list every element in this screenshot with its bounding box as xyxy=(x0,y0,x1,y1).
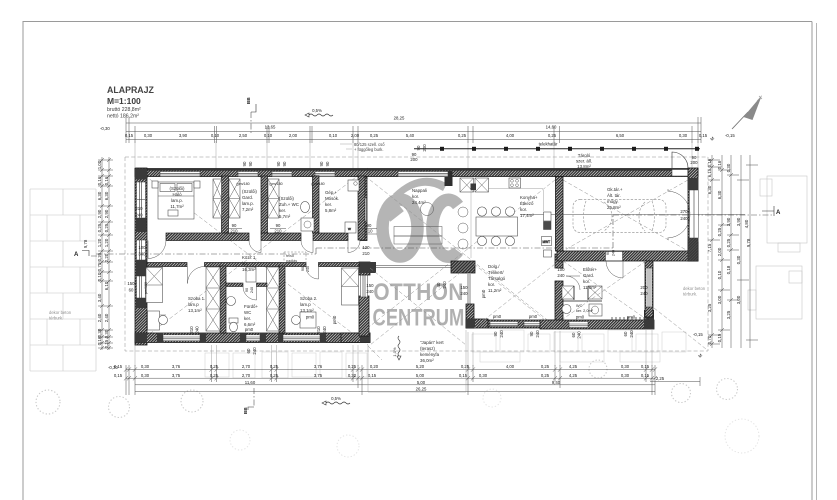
svg-text:13,1m²: 13,1m² xyxy=(300,308,314,313)
svg-text:0,16: 0,16 xyxy=(97,176,102,185)
svg-text:3,76: 3,76 xyxy=(314,364,323,369)
svg-text:lam.p.: lam.p. xyxy=(242,201,254,206)
svg-text:240: 240 xyxy=(135,213,143,218)
svg-text:60: 60 xyxy=(623,331,628,336)
svg-text:Ált. tár.: Ált. tár. xyxy=(607,193,621,198)
svg-text:90: 90 xyxy=(282,161,287,166)
svg-text:0,25: 0,25 xyxy=(104,223,109,232)
svg-text:11,0m²: 11,0m² xyxy=(583,285,597,290)
svg-text:pm0: pm0 xyxy=(576,315,585,320)
svg-text:Előtér+: Előtér+ xyxy=(583,267,597,272)
svg-text:lam.p.: lam.p. xyxy=(171,198,183,203)
svg-text:100: 100 xyxy=(557,267,565,272)
svg-text:0,25: 0,25 xyxy=(97,252,102,261)
svg-text:14,60: 14,60 xyxy=(546,125,557,130)
svg-text:13,65: 13,65 xyxy=(265,125,276,130)
svg-text:3,75: 3,75 xyxy=(314,373,323,378)
svg-text:ker.: ker. xyxy=(244,316,251,321)
svg-text:240: 240 xyxy=(612,250,616,256)
svg-text:1,0%: 1,0% xyxy=(392,347,397,357)
svg-text:210: 210 xyxy=(365,229,373,234)
svg-text:240: 240 xyxy=(306,266,310,272)
svg-text:90: 90 xyxy=(416,145,421,150)
svg-text:6,30: 6,30 xyxy=(717,190,722,199)
svg-text:200: 200 xyxy=(410,157,418,162)
svg-text:0,15: 0,15 xyxy=(699,133,708,138)
svg-text:2,25: 2,25 xyxy=(656,376,665,381)
svg-text:(pm/180: (pm/180 xyxy=(311,182,324,186)
svg-text:28,25: 28,25 xyxy=(394,116,405,121)
svg-text:3,90: 3,90 xyxy=(736,217,741,226)
svg-text:Gard.: Gard. xyxy=(242,195,253,200)
svg-text:2,00: 2,00 xyxy=(289,133,298,138)
svg-text:2,20: 2,20 xyxy=(104,253,109,262)
svg-text:(terasz): (terasz) xyxy=(420,346,435,351)
svg-text:0,25: 0,25 xyxy=(461,364,470,369)
svg-text:lam.p: lam.p xyxy=(188,302,199,307)
svg-text:Gk.tár.+: Gk.tár.+ xyxy=(607,187,623,192)
svg-text:4,80: 4,80 xyxy=(744,219,749,228)
svg-text:200: 200 xyxy=(422,144,427,152)
svg-text:60: 60 xyxy=(571,332,576,337)
svg-text:0,15: 0,15 xyxy=(641,373,650,378)
svg-text:5,8m²: 5,8m² xyxy=(325,208,337,213)
svg-text:26,25: 26,25 xyxy=(416,387,427,392)
svg-text:0,20: 0,20 xyxy=(370,364,379,369)
svg-text:340: 340 xyxy=(138,252,146,257)
svg-text:+ függőleg burk.: + függőleg burk. xyxy=(354,147,383,152)
svg-text:2,40: 2,40 xyxy=(104,313,109,322)
svg-text:0,30: 0,30 xyxy=(141,373,150,378)
svg-text:keményfa: keményfa xyxy=(420,352,440,357)
svg-text:0,5%: 0,5% xyxy=(312,108,322,113)
svg-text:240: 240 xyxy=(252,347,257,355)
svg-text:17,4m²: 17,4m² xyxy=(520,213,534,218)
svg-text:6,30: 6,30 xyxy=(97,191,102,200)
svg-text:BB: BB xyxy=(246,97,251,104)
svg-text:0,15: 0,15 xyxy=(114,373,123,378)
svg-text:90: 90 xyxy=(493,331,498,336)
svg-text:kor.: kor. xyxy=(412,194,419,199)
svg-text:0,15: 0,15 xyxy=(368,373,377,378)
svg-text:240: 240 xyxy=(366,289,374,294)
svg-text:2,90: 2,90 xyxy=(104,209,109,218)
svg-text:M=1:100: M=1:100 xyxy=(107,96,141,106)
svg-text:Nappali: Nappali xyxy=(412,188,427,193)
svg-text:3,00: 3,00 xyxy=(736,295,741,304)
svg-text:Háló: Háló xyxy=(172,192,182,197)
svg-text:A: A xyxy=(74,252,79,258)
svg-text:9,40: 9,40 xyxy=(552,380,561,385)
svg-text:nettó 186,2m²: nettó 186,2m² xyxy=(107,114,139,120)
svg-text:0,15: 0,15 xyxy=(641,364,650,369)
svg-text:0,30: 0,30 xyxy=(736,255,741,264)
svg-text:0,18: 0,18 xyxy=(726,265,731,274)
svg-text:2,70: 2,70 xyxy=(242,373,251,378)
svg-text:9,78: 9,78 xyxy=(746,238,751,247)
svg-text:2,50: 2,50 xyxy=(239,133,248,138)
svg-text:0,16: 0,16 xyxy=(717,160,722,169)
svg-text:90: 90 xyxy=(529,331,534,336)
svg-text:4,00: 4,00 xyxy=(506,364,515,369)
svg-text:ker.: ker. xyxy=(325,202,332,207)
svg-text:pm0: pm0 xyxy=(306,315,315,320)
svg-text:(pm/180: (pm/180 xyxy=(269,182,282,186)
svg-text:90: 90 xyxy=(245,288,249,292)
svg-text:240: 240 xyxy=(535,330,540,338)
svg-text:bruttó 228,8m²: bruttó 228,8m² xyxy=(107,107,141,113)
svg-text:5,00: 5,00 xyxy=(417,380,426,385)
svg-text:0,10: 0,10 xyxy=(97,272,102,281)
svg-text:0,30: 0,30 xyxy=(479,373,488,378)
svg-text:0,75: 0,75 xyxy=(97,262,102,271)
svg-text:5,7m²: 5,7m² xyxy=(279,214,291,219)
svg-text:240: 240 xyxy=(557,273,565,278)
svg-text:Fürdő+: Fürdő+ xyxy=(244,304,258,309)
svg-text:60: 60 xyxy=(129,288,134,293)
svg-text:pm/180: pm/180 xyxy=(144,282,148,294)
svg-text:kor.: kor. xyxy=(488,282,495,287)
svg-text:16,3m²: 16,3m² xyxy=(242,267,256,272)
svg-text:0,10: 0,10 xyxy=(329,133,338,138)
svg-text:210: 210 xyxy=(135,206,143,211)
svg-text:210: 210 xyxy=(362,251,370,256)
svg-text:0,30: 0,30 xyxy=(726,163,731,172)
svg-text:13,1m²: 13,1m² xyxy=(188,308,202,313)
svg-text:25,8m²: 25,8m² xyxy=(607,205,621,210)
svg-text:pm0: pm0 xyxy=(481,289,486,298)
svg-text:11,2m²: 11,2m² xyxy=(488,288,502,293)
svg-text:210: 210 xyxy=(316,326,321,334)
svg-text:1,00: 1,00 xyxy=(97,160,102,169)
svg-text:240: 240 xyxy=(499,330,504,338)
svg-text:Télikert/: Télikert/ xyxy=(488,270,504,275)
svg-text:0,25: 0,25 xyxy=(458,133,467,138)
svg-text:90: 90 xyxy=(319,161,324,166)
svg-text:0,15: 0,15 xyxy=(125,133,134,138)
svg-text:9,78: 9,78 xyxy=(83,239,88,248)
svg-text:Szoba 2.: Szoba 2. xyxy=(300,296,317,301)
svg-text:kor.: kor. xyxy=(520,207,527,212)
svg-text:0,10: 0,10 xyxy=(717,270,722,279)
svg-text:-0,15: -0,15 xyxy=(725,133,735,138)
svg-text:90: 90 xyxy=(325,161,330,166)
svg-text:0,25: 0,25 xyxy=(97,223,102,232)
svg-text:150: 150 xyxy=(127,281,135,286)
svg-text:dekor beton: dekor beton xyxy=(683,286,706,291)
svg-text:ALAPRAJZ: ALAPRAJZ xyxy=(107,85,155,95)
svg-text:2,00: 2,00 xyxy=(351,133,360,138)
svg-text:3,75: 3,75 xyxy=(172,373,181,378)
svg-text:ker. 2,0m²: ker. 2,0m² xyxy=(576,309,594,313)
svg-text:210: 210 xyxy=(274,229,282,234)
svg-text:-0,30: -0,30 xyxy=(108,365,118,370)
svg-text:0,30: 0,30 xyxy=(144,133,153,138)
svg-text:0,25: 0,25 xyxy=(270,364,279,369)
svg-text:4,25: 4,25 xyxy=(569,373,578,378)
svg-text:pm0: pm0 xyxy=(627,315,636,320)
svg-text:150: 150 xyxy=(460,285,468,290)
svg-text:2,40: 2,40 xyxy=(97,313,102,322)
svg-text:90: 90 xyxy=(276,223,281,228)
svg-text:40: 40 xyxy=(436,282,441,287)
svg-text:Közl. 1.: Közl. 1. xyxy=(242,255,257,260)
svg-text:0,25: 0,25 xyxy=(541,364,550,369)
svg-text:(pm/180: (pm/180 xyxy=(236,182,249,186)
svg-text:240: 240 xyxy=(460,291,468,296)
svg-text:0,25: 0,25 xyxy=(210,373,219,378)
svg-text:0,25: 0,25 xyxy=(541,373,550,378)
svg-text:BB: BB xyxy=(243,407,248,414)
svg-text:padlás: padlás xyxy=(286,259,297,263)
svg-text:240: 240 xyxy=(442,281,447,289)
svg-text:Tároló: Tároló xyxy=(578,153,591,158)
svg-text:90: 90 xyxy=(232,223,237,228)
svg-text:3,25: 3,25 xyxy=(726,310,731,319)
svg-text:(Szülői): (Szülői) xyxy=(170,186,185,191)
svg-text:pm0: pm0 xyxy=(245,327,254,332)
svg-text:WC: WC xyxy=(244,310,251,315)
svg-text:4,25: 4,25 xyxy=(569,364,578,369)
svg-text:ker.: ker. xyxy=(279,208,286,213)
svg-text:240: 240 xyxy=(250,287,254,293)
svg-text:3,00: 3,00 xyxy=(717,295,722,304)
svg-text:A: A xyxy=(776,210,781,216)
svg-text:90: 90 xyxy=(242,161,247,166)
svg-text:0,25: 0,25 xyxy=(210,364,219,369)
svg-text:0,30: 0,30 xyxy=(621,373,630,378)
svg-text:0,25: 0,25 xyxy=(270,373,279,378)
svg-text:telekhatár: telekhatár xyxy=(539,142,558,147)
svg-text:0,30: 0,30 xyxy=(679,133,688,138)
svg-text:240: 240 xyxy=(577,331,582,339)
svg-text:(Szülői): (Szülői) xyxy=(279,196,294,201)
svg-text:6,30: 6,30 xyxy=(104,191,109,200)
svg-text:szer. áll.: szer. áll. xyxy=(576,159,592,164)
svg-text:0,30: 0,30 xyxy=(621,364,630,369)
svg-text:0,10: 0,10 xyxy=(211,133,220,138)
svg-text:Gép.+: Gép.+ xyxy=(325,190,338,195)
svg-text:5,40: 5,40 xyxy=(406,133,415,138)
svg-text:6,10: 6,10 xyxy=(104,281,109,290)
svg-text:3,90: 3,90 xyxy=(726,217,731,226)
svg-text:0,10: 0,10 xyxy=(264,133,273,138)
svg-text:210: 210 xyxy=(189,326,194,334)
svg-text:CENTRUM: CENTRUM xyxy=(373,304,465,331)
svg-text:11,60: 11,60 xyxy=(245,380,256,385)
svg-text:90: 90 xyxy=(606,251,610,255)
svg-text:240: 240 xyxy=(195,326,200,334)
svg-text:5,00: 5,00 xyxy=(416,373,425,378)
svg-text:térburk.: térburk. xyxy=(683,292,697,297)
svg-text:w: w xyxy=(348,226,351,231)
svg-text:3,76: 3,76 xyxy=(172,364,181,369)
svg-text:Szoba 1.: Szoba 1. xyxy=(188,296,205,301)
svg-text:90: 90 xyxy=(367,223,372,228)
svg-text:90: 90 xyxy=(276,161,281,166)
svg-text:6,50: 6,50 xyxy=(616,133,625,138)
svg-text:0,25: 0,25 xyxy=(726,238,731,247)
svg-text:36,0m²: 36,0m² xyxy=(420,358,434,363)
svg-text:210: 210 xyxy=(230,229,238,234)
svg-text:200: 200 xyxy=(640,285,648,290)
svg-text:240: 240 xyxy=(322,326,327,334)
svg-text:24,4m²: 24,4m² xyxy=(412,200,426,205)
svg-text:felső: felső xyxy=(286,254,294,258)
svg-text:MWT: MWT xyxy=(543,240,551,244)
svg-text:kor.: kor. xyxy=(583,279,590,284)
svg-text:1,20: 1,20 xyxy=(97,238,102,247)
svg-text:4,00: 4,00 xyxy=(506,133,515,138)
svg-text:térburk.: térburk. xyxy=(49,316,63,321)
svg-text:90: 90 xyxy=(248,161,253,166)
svg-text:150: 150 xyxy=(366,283,374,288)
svg-text:7,2m²: 7,2m² xyxy=(242,207,254,212)
svg-text:Étkező: Étkező xyxy=(520,201,534,206)
svg-text:Társalgó: Társalgó xyxy=(488,276,506,281)
svg-text:60: 60 xyxy=(246,348,251,353)
svg-text:240: 240 xyxy=(629,330,634,338)
svg-text:120: 120 xyxy=(362,245,370,250)
svg-text:Zuh.+ WC: Zuh.+ WC xyxy=(279,202,299,207)
svg-text:0,25: 0,25 xyxy=(717,227,722,236)
svg-text:kor.: kor. xyxy=(242,261,249,266)
svg-text:"Japán" kert: "Japán" kert xyxy=(420,340,444,345)
svg-text:Dolg./: Dolg./ xyxy=(488,264,500,269)
svg-text:dekor beton: dekor beton xyxy=(49,310,72,315)
svg-text:0,30: 0,30 xyxy=(348,373,357,378)
svg-text:0,16: 0,16 xyxy=(104,176,109,185)
svg-text:Mosók.: Mosók. xyxy=(325,196,339,201)
svg-text:pm0: pm0 xyxy=(529,314,538,319)
svg-text:3,90: 3,90 xyxy=(179,133,188,138)
svg-text:pm0: pm0 xyxy=(493,314,502,319)
svg-text:200: 200 xyxy=(690,160,698,165)
svg-text:0,30: 0,30 xyxy=(141,364,150,369)
svg-text:0,25: 0,25 xyxy=(348,364,357,369)
svg-text:2,90: 2,90 xyxy=(97,209,102,218)
svg-text:pm0: pm0 xyxy=(332,315,337,324)
svg-text:5,20: 5,20 xyxy=(416,364,425,369)
svg-text:0,15: 0,15 xyxy=(717,333,722,342)
svg-text:WC: WC xyxy=(576,304,583,308)
svg-text:0,15: 0,15 xyxy=(459,373,468,378)
svg-text:(Szülői): (Szülői) xyxy=(242,189,257,194)
svg-text:-0,30: -0,30 xyxy=(100,126,110,131)
svg-text:lam.p: lam.p xyxy=(300,302,311,307)
svg-text:240: 240 xyxy=(680,216,688,221)
svg-text:0,25: 0,25 xyxy=(548,133,557,138)
svg-text:11,7m²: 11,7m² xyxy=(170,204,184,209)
svg-text:2,70: 2,70 xyxy=(242,364,251,369)
svg-text:3,40: 3,40 xyxy=(97,293,102,302)
svg-text:Gard.: Gard. xyxy=(583,273,594,278)
svg-text:270: 270 xyxy=(680,209,688,214)
svg-text:100: 100 xyxy=(138,245,146,250)
svg-text:1,20: 1,20 xyxy=(104,238,109,247)
svg-text:240: 240 xyxy=(640,291,648,296)
svg-text:műgy.: műgy. xyxy=(607,199,619,204)
svg-text:90: 90 xyxy=(301,267,305,271)
svg-text:Konyha+: Konyha+ xyxy=(520,195,538,200)
svg-text:-0,15: -0,15 xyxy=(693,332,703,337)
svg-text:0,25: 0,25 xyxy=(370,133,379,138)
svg-text:0,5%: 0,5% xyxy=(331,396,341,401)
svg-text:0,30: 0,30 xyxy=(97,328,102,337)
svg-text:2,00: 2,00 xyxy=(717,247,722,256)
